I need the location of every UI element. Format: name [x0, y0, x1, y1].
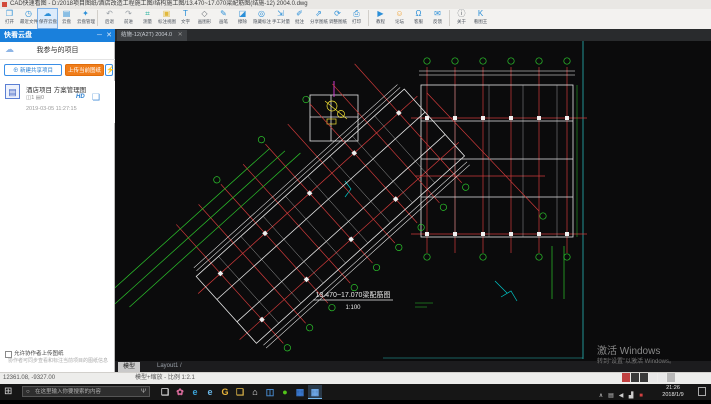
ime-box-2[interactable]: [640, 373, 648, 382]
share-drawing-icon: ⇗: [309, 9, 328, 19]
statusbar-hint: 模型+缩放 - 比例 1:2.1: [135, 373, 195, 384]
watermark-line2: 转到“设置”以激活 Windows。: [597, 358, 675, 366]
taskbar-icon-wechat[interactable]: ●: [278, 385, 292, 399]
toolbar-separator: [368, 10, 369, 26]
plan-scale-text: 1:100: [345, 305, 361, 311]
toolbar-separator: [97, 10, 98, 26]
toolbar-button-kantuwang[interactable]: K看图王: [471, 9, 490, 28]
tray-battery[interactable]: ▤: [606, 388, 616, 404]
pen-icon: ✎: [214, 9, 233, 19]
redo-icon: ↷: [119, 9, 138, 19]
ime-toolbar[interactable]: [622, 373, 676, 383]
annotate-view-icon: ▣: [157, 9, 176, 19]
project-section-title: 我参与的项目: [0, 42, 115, 59]
toolbar-button-manual-takeoff[interactable]: ⇲手工对量: [271, 9, 290, 28]
action-center-icon[interactable]: [698, 387, 706, 396]
allow-upload-label: 允许协作者上传图纸: [14, 349, 64, 357]
system-tray: ∧▤◀▟■: [596, 384, 646, 400]
toolbar-button-about[interactable]: ⓘ关于: [452, 9, 471, 28]
taskbar-search-box[interactable]: ○ 在这里输入你要搜索的内容 Ψ: [22, 386, 150, 397]
toolbar-button-save-cloud[interactable]: ☁保存云盘: [38, 9, 57, 28]
forum-icon: ☺: [390, 9, 409, 19]
toolbar-button-pen[interactable]: ✎画笔: [214, 9, 233, 28]
taskbar-icon-ie[interactable]: e: [203, 385, 217, 399]
taskbar-clock[interactable]: 21:26 2018/1/9: [652, 385, 694, 399]
print-icon: ⎙: [347, 9, 366, 19]
project-stats: ◫1 ▤0: [26, 95, 44, 101]
cad-drawing-canvas[interactable]: 13.470~17.070梁配筋图 1:100: [115, 41, 711, 361]
upload-current-drawing-button[interactable]: 上传当前图纸: [65, 64, 104, 76]
start-button[interactable]: ⊞: [4, 386, 12, 398]
comment-icon: ✐: [290, 9, 309, 19]
toolbar-button-draw-shape[interactable]: ◇画图形: [195, 9, 214, 28]
search-icon: ○: [26, 388, 30, 397]
text-icon: T: [176, 9, 195, 19]
toolbar-button-open[interactable]: ❐打开: [0, 9, 19, 28]
ime-box-4[interactable]: [658, 373, 666, 382]
feedback-icon: ✉: [428, 9, 447, 19]
tutorial-icon: ▶: [371, 9, 390, 19]
taskbar-icon-app-g[interactable]: G: [218, 385, 232, 399]
save-cloud-icon: ☁: [38, 9, 57, 19]
manual-takeoff-icon: ⇲: [271, 9, 290, 19]
new-shared-project-button[interactable]: ⊕ 新建共享项目: [4, 64, 62, 76]
measure-icon: ⌗: [138, 9, 157, 19]
recent-files-icon: ◷: [19, 9, 38, 19]
cloud-panel-header: 快看云盘 ─ ✕: [0, 29, 115, 42]
taskbar-icon-task-view[interactable]: ❏: [158, 385, 172, 399]
cloud-manage-icon: ✦: [76, 9, 95, 19]
activate-windows-watermark: 激活 Windows 转到“设置”以激活 Windows。: [597, 346, 675, 366]
app-icon: [2, 2, 7, 7]
hd-badge: HD: [76, 94, 85, 100]
project-section-header: ☁ 我参与的项目: [0, 42, 115, 60]
drawing-tabstrip: 结施-12(A2T) 2004.0 ✕: [115, 29, 711, 41]
toolbar-button-tutorial[interactable]: ▶教程: [371, 9, 390, 28]
taskbar-icon-edge[interactable]: e: [188, 385, 202, 399]
clock-date: 2018/1/9: [652, 392, 694, 399]
taskbar-icon-photos[interactable]: ◫: [263, 385, 277, 399]
toolbar-button-support[interactable]: Ω客服: [409, 9, 428, 28]
toolbar-button-measure[interactable]: ⌗测量: [138, 9, 157, 28]
toolbar-button-recent-files[interactable]: ◷最近文件: [19, 9, 38, 28]
draw-shape-icon: ◇: [195, 9, 214, 19]
model-tab[interactable]: 模型: [118, 362, 140, 372]
toolbar-separator: [449, 10, 450, 26]
tray-volume[interactable]: ◀: [616, 388, 626, 404]
erase-icon: ◪: [233, 9, 252, 19]
taskbar-icon-cad-viewer-active[interactable]: ▦: [308, 385, 322, 399]
toolbar-button-annotate-view[interactable]: ▣标注视图: [157, 9, 176, 28]
taskbar-icon-cad-app[interactable]: ▦: [293, 385, 307, 399]
tray-security[interactable]: ■: [636, 388, 646, 404]
toolbar-button-redo[interactable]: ↷前进: [119, 9, 138, 28]
main-toolbar: ❐打开◷最近文件☁保存云盘▤云盘✦云盘管理↶后退↷前进⌗测量▣标注视图T文字◇画…: [0, 9, 711, 30]
layout-tab[interactable]: Layout1 /: [157, 361, 182, 372]
drawing-tab[interactable]: 结施-12(A2T) 2004.0 ✕: [117, 30, 187, 41]
project-date: 2019-03-05 11:27:15: [26, 106, 77, 112]
cursor-coordinates: 12361.08, -9327.00: [3, 373, 55, 384]
taskbar-icon-store[interactable]: ⌂: [248, 385, 262, 399]
project-folder-icon[interactable]: ❏: [92, 92, 100, 103]
quick-action-button[interactable]: ⚡: [105, 64, 113, 76]
tab-close-icon[interactable]: ✕: [178, 32, 183, 38]
kantuwang-icon: K: [471, 9, 490, 19]
watermark-line1: 激活 Windows: [597, 346, 675, 358]
microphone-icon[interactable]: Ψ: [141, 387, 146, 397]
undo-icon: ↶: [100, 9, 119, 19]
open-icon: ❐: [0, 9, 19, 19]
toolbar-button-text[interactable]: T文字: [176, 9, 195, 28]
tray-expand[interactable]: ∧: [596, 388, 606, 404]
ime-box-5[interactable]: [667, 373, 675, 382]
toolbar-button-share-drawing[interactable]: ⇗分享图纸: [309, 9, 328, 28]
toolbar-button-cloud-drive[interactable]: ▤云盘: [57, 9, 76, 28]
toolbar-button-hide-annotation[interactable]: ◎隐藏标注: [252, 9, 271, 28]
project-file-icon: ▤: [5, 84, 20, 99]
panel-minimize-icon[interactable]: ─: [97, 29, 102, 42]
toolbar-button-cloud-manage[interactable]: ✦云盘管理: [76, 9, 95, 28]
about-icon: ⓘ: [452, 9, 471, 19]
app-statusbar: 12361.08, -9327.00 模型+缩放 - 比例 1:2.1: [0, 372, 711, 384]
adjust-drawing-icon: ⟳: [328, 9, 347, 19]
ime-box-0[interactable]: [622, 373, 630, 382]
toolbar-button-forum[interactable]: ☺论坛: [390, 9, 409, 28]
tray-network[interactable]: ▟: [626, 388, 636, 404]
toolbar-button-undo[interactable]: ↶后退: [100, 9, 119, 28]
search-placeholder: 在这里输入你要搜索的内容: [35, 387, 101, 397]
windows-taskbar: ⊞ ○ 在这里输入你要搜索的内容 Ψ ❏✿eeG❑⌂◫●▦▦ ∧▤◀▟■ 21:…: [0, 384, 711, 400]
window-title: CAD快速看图 - D:/2018项目图纸/酒店改造工程施工图/结构施工图/13…: [10, 0, 308, 9]
taskbar-icon-explorer[interactable]: ❑: [233, 385, 247, 399]
project-list-item[interactable]: ▤ 酒店项目 方案管理图 ◫1 ▤0 HD ❏ 2019-03-05 11:27…: [0, 81, 115, 123]
cloud-panel: 快看云盘 ─ ✕ ☁ 我参与的项目 ⊕ 新建共享项目 上传当前图纸 ⚡ ▤ 酒店…: [0, 29, 115, 372]
panel-close-icon[interactable]: ✕: [106, 29, 112, 42]
support-icon: Ω: [409, 9, 428, 19]
hide-annotation-icon: ◎: [252, 9, 271, 19]
project-name: 酒店项目 方案管理图: [26, 84, 86, 94]
toolbar-button-erase[interactable]: ◪擦除: [233, 9, 252, 28]
toolbar-button-print[interactable]: ⎙打印: [347, 9, 366, 28]
ime-box-3[interactable]: [649, 373, 657, 382]
cloud-drive-icon: ▤: [57, 9, 76, 19]
toolbar-button-comment[interactable]: ✐批注: [290, 9, 309, 28]
toolbar-button-adjust-drawing[interactable]: ⟳调整图纸: [328, 9, 347, 28]
panel-hint-text: 协作者可同步查看和标注当前项目的图纸信息: [8, 358, 110, 364]
drawing-tab-label: 结施-12(A2T) 2004.0: [121, 32, 172, 38]
plan-title-text: 13.470~17.070梁配筋图: [316, 290, 391, 299]
clock-time: 21:26: [652, 385, 694, 392]
cloud-panel-title: 快看云盘: [4, 29, 32, 42]
toolbar-button-feedback[interactable]: ✉反馈: [428, 9, 447, 28]
allow-upload-checkbox[interactable]: [5, 351, 12, 358]
floor-plan-drawing: 13.470~17.070梁配筋图 1:100: [115, 41, 711, 361]
window-titlebar: CAD快速看图 - D:/2018项目图纸/酒店改造工程施工图/结构施工图/13…: [0, 0, 711, 9]
taskbar-icon-app-pink[interactable]: ✿: [173, 385, 187, 399]
ime-box-1[interactable]: [631, 373, 639, 382]
